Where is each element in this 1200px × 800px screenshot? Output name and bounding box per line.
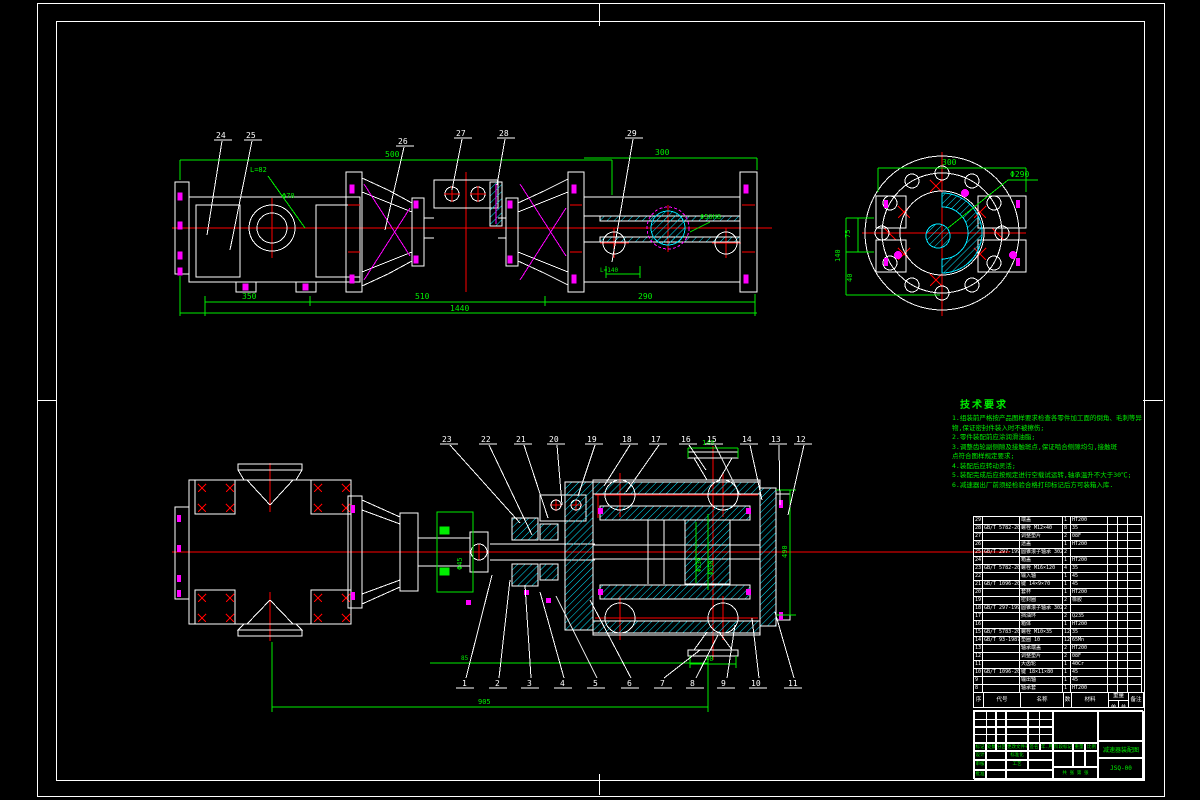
table-cell xyxy=(1127,660,1142,668)
table-cell xyxy=(1127,556,1142,564)
table-cell: 箱盖 xyxy=(1019,556,1062,564)
parts-list: 29端盖1HT20028GB/T 5782-2000螺栓 M12×4083527… xyxy=(973,516,1144,708)
balloon: 11 xyxy=(788,679,798,688)
table-cell xyxy=(1107,532,1117,540)
table-cell: 08F xyxy=(1070,652,1107,660)
table-cell: 35 xyxy=(1070,524,1107,532)
table-cell xyxy=(1070,604,1107,612)
balloon: 6 xyxy=(627,679,632,688)
col-header: 代号 xyxy=(984,693,1020,707)
table-cell: 22 xyxy=(973,572,982,580)
balloon: 9 xyxy=(721,679,726,688)
table-cell xyxy=(1107,540,1117,548)
drawing-title: 减速器装配图 xyxy=(1098,741,1144,758)
table-row: 11大齿轮140Cr xyxy=(973,660,1144,668)
table-cell: 调整垫片 xyxy=(1019,652,1062,660)
dim-label: Φ230 xyxy=(696,557,703,572)
dim-label: Φ290 xyxy=(1010,170,1029,179)
bottom-balloons-bottom: 1 2 3 4 5 6 7 8 9 10 11 xyxy=(462,679,798,688)
table-cell: GB/T 1096-2003 xyxy=(982,668,1019,676)
dim-label: 75 xyxy=(844,230,852,238)
top-view-dim-text: 500 300 350 510 290 1440 L=82 Φ70 Φ50H8 … xyxy=(242,148,721,313)
balloon: 26 xyxy=(398,137,408,146)
table-cell xyxy=(982,532,1019,540)
balloon: 8 xyxy=(690,679,695,688)
table-row: 27调整垫片208F xyxy=(973,532,1144,540)
table-cell xyxy=(1107,604,1117,612)
table-cell xyxy=(1117,580,1127,588)
table-cell: 1 xyxy=(1062,660,1070,668)
balloon: 27 xyxy=(456,129,466,138)
table-cell: 轴承套 xyxy=(1019,684,1062,692)
table-cell: 18 xyxy=(973,604,982,612)
table-cell: 24 xyxy=(973,556,982,564)
balloon: 10 xyxy=(751,679,761,688)
balloon: 1 xyxy=(462,679,467,688)
dim-label: Φ70 xyxy=(282,192,295,200)
table-cell xyxy=(982,596,1019,604)
balloon: 20 xyxy=(549,435,559,444)
dim-label: Φ45 xyxy=(456,557,464,570)
table-cell: GB/T 5783-2000 xyxy=(982,628,1019,636)
dim-label: 290 xyxy=(638,292,653,301)
table-cell: 1 xyxy=(1062,572,1070,580)
col-header: 序号 xyxy=(974,693,983,707)
table-cell: GB/T 93-1987 xyxy=(982,636,1019,644)
table-row: 25GB/T 297-1994圆锥滚子轴承 302122 xyxy=(973,548,1144,556)
table-cell xyxy=(1127,652,1142,660)
balloon: 24 xyxy=(216,131,226,140)
table-cell xyxy=(982,676,1019,684)
tb-weight: 重量 xyxy=(1073,743,1085,751)
dim-label: 140 xyxy=(834,249,842,262)
dim-label: 905 xyxy=(478,698,491,706)
table-cell xyxy=(1117,668,1127,676)
table-row: 17挡油环2Q235 xyxy=(973,612,1144,620)
dim-label: 300 xyxy=(655,148,670,157)
table-cell xyxy=(1070,548,1107,556)
table-cell xyxy=(982,572,1019,580)
table-cell: 25 xyxy=(973,548,982,556)
table-cell: 17 xyxy=(973,612,982,620)
tb-count: 处数 xyxy=(986,743,996,751)
dim-label: 510 xyxy=(415,292,430,301)
table-cell xyxy=(1117,588,1127,596)
dim-label: 350 xyxy=(242,292,257,301)
table-cell xyxy=(982,660,1019,668)
table-cell xyxy=(1117,660,1127,668)
dim-label: 85 xyxy=(461,655,469,662)
table-row: 29端盖1HT200 xyxy=(973,516,1144,524)
table-cell xyxy=(1107,572,1117,580)
table-cell: HT200 xyxy=(1070,540,1107,548)
table-cell xyxy=(1117,628,1127,636)
table-cell: 8 xyxy=(973,684,982,692)
table-cell: 1 xyxy=(1062,540,1070,548)
table-cell xyxy=(1117,564,1127,572)
bottom-dim-text: 140 40 490 85 905 Φ45 Φ230 Φ250 xyxy=(456,439,789,706)
tb-craft: 工艺 xyxy=(1006,760,1028,770)
table-row: 10GB/T 1096-2003键 18×11×80145 xyxy=(973,668,1144,676)
balloon: 25 xyxy=(246,131,256,140)
table-cell xyxy=(1117,676,1127,684)
table-row: 20套杯1HT200 xyxy=(973,588,1144,596)
balloon: 28 xyxy=(499,129,509,138)
table-cell: 45 xyxy=(1070,676,1107,684)
table-cell: 12 xyxy=(1062,636,1070,644)
table-cell xyxy=(1117,604,1127,612)
table-cell: 输入轴 xyxy=(1019,572,1062,580)
table-row: 19密封圈2橡胶 xyxy=(973,596,1144,604)
technical-notes: 技术要求 1.组装前严格按产品图样要求检查各零件加工面的倒角、毛刺等异 物,保证… xyxy=(952,396,1167,490)
table-cell xyxy=(1117,596,1127,604)
table-cell: 15 xyxy=(973,628,982,636)
table-cell: 8 xyxy=(1062,524,1070,532)
balloon: 22 xyxy=(481,435,491,444)
table-cell xyxy=(1107,652,1117,660)
col-header: 总计 xyxy=(1119,701,1128,707)
table-cell xyxy=(1107,524,1117,532)
table-cell: 2 xyxy=(1062,532,1070,540)
table-cell: 20 xyxy=(973,588,982,596)
flange-geometry xyxy=(865,156,1026,310)
table-cell xyxy=(982,540,1019,548)
tb-zone: 分区 xyxy=(996,743,1006,751)
table-cell xyxy=(1117,572,1127,580)
dim-label: L=140 xyxy=(600,267,618,274)
table-cell xyxy=(982,516,1019,524)
table-cell: 输出轴 xyxy=(1019,676,1062,684)
table-cell: GB/T 1096-2003 xyxy=(982,580,1019,588)
dim-label: 490 xyxy=(781,545,789,558)
table-cell: 键 18×11×80 xyxy=(1019,668,1062,676)
tb-sheets: 共 张 第 张 xyxy=(1053,767,1098,780)
balloon: 3 xyxy=(527,679,532,688)
note-line: 点符合图样规定要求; xyxy=(952,452,1167,462)
table-cell: 11 xyxy=(973,660,982,668)
balloon: 2 xyxy=(495,679,500,688)
table-cell: HT200 xyxy=(1070,620,1107,628)
table-cell xyxy=(1127,532,1142,540)
tb-file-no: 更改文件号 xyxy=(1006,743,1028,751)
table-cell xyxy=(1127,620,1142,628)
table-cell xyxy=(1127,516,1142,524)
balloon: 19 xyxy=(587,435,597,444)
balloon: 5 xyxy=(593,679,598,688)
balloon: 21 xyxy=(516,435,526,444)
balloon: 18 xyxy=(622,435,632,444)
table-row: 16箱体1HT200 xyxy=(973,620,1144,628)
table-cell xyxy=(1117,556,1127,564)
table-cell: 透盖 xyxy=(1019,540,1062,548)
table-cell: 35 xyxy=(1070,564,1107,572)
table-cell xyxy=(1117,524,1127,532)
table-cell xyxy=(1107,684,1117,692)
balloon: 16 xyxy=(681,435,691,444)
table-cell xyxy=(1117,644,1127,652)
table-cell: 调整垫片 xyxy=(1019,532,1062,540)
drawing-number: JSQ-00 xyxy=(1098,758,1144,780)
table-row: 18GB/T 297-1994圆锥滚子轴承 302152 xyxy=(973,604,1144,612)
table-cell xyxy=(1117,516,1127,524)
balloon: 4 xyxy=(560,679,565,688)
cad-sheet: { "colors":{"line":"#ffffff","dim":"#00e… xyxy=(0,0,1200,800)
tb-stage: 阶段标记 xyxy=(1053,743,1073,751)
table-cell: 45 xyxy=(1070,668,1107,676)
table-cell xyxy=(1107,644,1117,652)
table-row: 26透盖1HT200 xyxy=(973,540,1144,548)
table-cell: 1 xyxy=(1062,676,1070,684)
table-cell: 圆锥滚子轴承 30212 xyxy=(1019,548,1062,556)
table-cell: 35 xyxy=(1070,628,1107,636)
table-cell: 21 xyxy=(973,580,982,588)
table-cell: 14 xyxy=(973,636,982,644)
table-row: 13轴承端盖2HT200 xyxy=(973,644,1144,652)
table-cell xyxy=(1127,580,1142,588)
note-line: 1.组装前严格按产品图样要求检查各零件加工面的倒角、毛刺等异 xyxy=(952,414,1167,424)
dim-label: Φ50H8 xyxy=(700,213,721,221)
table-cell: 2 xyxy=(1062,612,1070,620)
table-cell: 套杯 xyxy=(1019,588,1062,596)
dim-label: 300 xyxy=(942,158,957,167)
table-cell xyxy=(1127,524,1142,532)
balloon: 23 xyxy=(442,435,452,444)
balloon: 13 xyxy=(771,435,781,444)
table-cell: 12 xyxy=(1062,628,1070,636)
table-cell: 2 xyxy=(1062,644,1070,652)
table-cell: 1 xyxy=(1062,516,1070,524)
table-cell: 圆锥滚子轴承 30215 xyxy=(1019,604,1062,612)
table-cell xyxy=(1127,540,1142,548)
dim-label: L=82 xyxy=(250,166,267,174)
top-view-balloons: 24 25 26 27 28 29 xyxy=(216,129,637,146)
table-cell: 端盖 xyxy=(1019,516,1062,524)
table-cell: 1 xyxy=(1062,684,1070,692)
table-cell xyxy=(1107,596,1117,604)
table-row: 14GB/T 93-1987垫圈 101265Mn xyxy=(973,636,1144,644)
table-cell: 2 xyxy=(1062,548,1070,556)
table-cell: 1 xyxy=(1062,668,1070,676)
table-cell xyxy=(1127,636,1142,644)
table-cell: HT200 xyxy=(1070,588,1107,596)
table-cell xyxy=(1107,612,1117,620)
tb-design: 设计 xyxy=(974,751,986,760)
balloon: 15 xyxy=(707,435,717,444)
table-cell: 1 xyxy=(1062,588,1070,596)
table-cell: 23 xyxy=(973,564,982,572)
tb-scale: 比例 xyxy=(1085,743,1098,751)
table-cell xyxy=(1107,636,1117,644)
table-cell: 箱体 xyxy=(1019,620,1062,628)
balloon: 12 xyxy=(796,435,806,444)
table-cell: 1 xyxy=(1062,556,1070,564)
bottom-balloons-top: 23 22 21 20 19 18 17 16 15 14 13 12 xyxy=(442,435,806,444)
table-cell: 4 xyxy=(1062,564,1070,572)
table-cell: GB/T 5782-2000 xyxy=(982,524,1019,532)
table-cell xyxy=(1127,628,1142,636)
bottom-geometry xyxy=(175,452,790,656)
parts-list-header: 序号 代号 名称 数量 材料 重量 单件 总计 备注 xyxy=(973,692,1144,708)
table-cell: 2 xyxy=(1062,604,1070,612)
table-cell: 螺栓 M12×40 xyxy=(1019,524,1062,532)
table-cell: 2 xyxy=(1062,596,1070,604)
table-cell xyxy=(1127,644,1142,652)
table-cell xyxy=(1117,532,1127,540)
tb-date: 年.月.日 xyxy=(1040,743,1053,751)
table-cell xyxy=(1127,564,1142,572)
col-header: 材料 xyxy=(1072,693,1108,707)
table-cell xyxy=(1107,628,1117,636)
note-line: 6.减速器出厂前须经检验合格打印标记后方可装箱入库. xyxy=(952,481,1167,491)
table-row: 9输出轴145 xyxy=(973,676,1144,684)
table-cell: 轴承端盖 xyxy=(1019,644,1062,652)
notes-title: 技术要求 xyxy=(960,396,1167,411)
table-cell xyxy=(1107,660,1117,668)
table-cell xyxy=(1127,676,1142,684)
table-cell xyxy=(1117,652,1127,660)
table-cell: 19 xyxy=(973,596,982,604)
table-cell: 密封圈 xyxy=(1019,596,1062,604)
table-cell: 45 xyxy=(1070,580,1107,588)
table-cell: Q235 xyxy=(1070,612,1107,620)
table-cell: 27 xyxy=(973,532,982,540)
tb-sign: 签名 xyxy=(1028,743,1040,751)
table-cell: 10 xyxy=(973,668,982,676)
table-cell xyxy=(982,612,1019,620)
table-cell: HT200 xyxy=(1070,516,1107,524)
table-cell xyxy=(1107,668,1117,676)
table-cell: 大齿轮 xyxy=(1019,660,1062,668)
table-cell: GB/T 297-1994 xyxy=(982,604,1019,612)
table-row: 28GB/T 5782-2000螺栓 M12×40835 xyxy=(973,524,1144,532)
note-line: 2.零件装配前应涂润滑油脂; xyxy=(952,433,1167,443)
dim-label: 40 xyxy=(846,274,854,282)
table-cell xyxy=(1107,620,1117,628)
table-cell xyxy=(982,644,1019,652)
table-cell: 26 xyxy=(973,540,982,548)
table-cell xyxy=(982,684,1019,692)
table-cell xyxy=(1117,612,1127,620)
table-cell xyxy=(1107,516,1117,524)
dim-label: Φ250 xyxy=(708,560,715,575)
col-header: 数量 xyxy=(1064,693,1071,707)
note-line: 4.装配后应转动灵活; xyxy=(952,462,1167,472)
table-cell: 键 14×9×70 xyxy=(1019,580,1062,588)
table-cell xyxy=(1117,540,1127,548)
tb-audit: 审核 xyxy=(974,760,986,770)
table-cell: 45 xyxy=(1070,572,1107,580)
table-cell: 08F xyxy=(1070,532,1107,540)
table-cell: GB/T 297-1994 xyxy=(982,548,1019,556)
table-cell xyxy=(982,556,1019,564)
col-header-weight: 重量 xyxy=(1109,693,1128,701)
table-cell xyxy=(1107,588,1117,596)
table-cell xyxy=(1107,556,1117,564)
table-cell: 29 xyxy=(973,516,982,524)
table-cell: 挡油环 xyxy=(1019,612,1062,620)
table-cell: 9 xyxy=(973,676,982,684)
table-cell xyxy=(1107,580,1117,588)
table-cell: HT200 xyxy=(1070,644,1107,652)
table-cell xyxy=(1107,548,1117,556)
table-cell: 垫圈 10 xyxy=(1019,636,1062,644)
title-block: 标记 处数 分区 更改文件号 签名 年.月.日 设计 标准化 审核 工艺 批准 … xyxy=(973,710,1143,779)
table-cell xyxy=(1107,676,1117,684)
table-cell xyxy=(1127,668,1142,676)
table-cell xyxy=(1117,620,1127,628)
table-cell xyxy=(1127,588,1142,596)
tb-approve: 批准 xyxy=(974,770,986,780)
table-cell xyxy=(1127,612,1142,620)
parts-list-rows: 29端盖1HT20028GB/T 5782-2000螺栓 M12×4083527… xyxy=(973,516,1144,692)
table-row: 15GB/T 5783-2000螺栓 M10×351235 xyxy=(973,628,1144,636)
balloon: 14 xyxy=(742,435,752,444)
table-cell xyxy=(1107,564,1117,572)
table-cell: HT200 xyxy=(1070,684,1107,692)
table-cell: 65Mn xyxy=(1070,636,1107,644)
table-cell: 橡胶 xyxy=(1070,596,1107,604)
table-cell xyxy=(982,652,1019,660)
table-cell: 16 xyxy=(973,620,982,628)
table-cell: 13 xyxy=(973,644,982,652)
table-cell xyxy=(1127,572,1142,580)
table-cell: 28 xyxy=(973,524,982,532)
col-header: 单件 xyxy=(1109,701,1119,707)
balloon: 17 xyxy=(651,435,661,444)
table-row: 23GB/T 5782-2000螺栓 M16×120435 xyxy=(973,564,1144,572)
table-row: 21GB/T 1096-2003键 14×9×70145 xyxy=(973,580,1144,588)
table-cell: 40Cr xyxy=(1070,660,1107,668)
table-cell: HT200 xyxy=(1070,556,1107,564)
balloon: 29 xyxy=(627,129,637,138)
table-row: 8轴承套1HT200 xyxy=(973,684,1144,692)
table-cell: 螺栓 M16×120 xyxy=(1019,564,1062,572)
note-line: 5.装配完成后应按规定进行空载试运转,轴承温升不大于30℃; xyxy=(952,471,1167,481)
table-cell xyxy=(982,588,1019,596)
table-cell xyxy=(1127,596,1142,604)
table-row: 22输入轴145 xyxy=(973,572,1144,580)
table-row: 24箱盖1HT200 xyxy=(973,556,1144,564)
note-line: 物,保证密封件装入时不被擦伤; xyxy=(952,424,1167,434)
table-cell: 12 xyxy=(973,652,982,660)
table-cell xyxy=(1117,636,1127,644)
table-cell: 1 xyxy=(1062,620,1070,628)
table-cell xyxy=(1117,684,1127,692)
dim-label: 1440 xyxy=(450,304,469,313)
table-cell: 1 xyxy=(1062,580,1070,588)
table-cell xyxy=(1127,604,1142,612)
table-cell xyxy=(1117,548,1127,556)
lug-cross-marks xyxy=(198,473,745,640)
table-cell xyxy=(982,620,1019,628)
tb-standard: 标准化 xyxy=(1006,751,1028,760)
table-cell xyxy=(1127,684,1142,692)
table-cell: GB/T 5782-2000 xyxy=(982,564,1019,572)
col-header: 名称 xyxy=(1021,693,1063,707)
col-header: 备注 xyxy=(1129,693,1143,707)
table-cell: 2 xyxy=(1062,652,1070,660)
balloon: 7 xyxy=(660,679,665,688)
dim-label: 500 xyxy=(385,150,400,159)
table-cell: 螺栓 M10×35 xyxy=(1019,628,1062,636)
table-cell xyxy=(1127,548,1142,556)
note-line: 3.调整齿轮副侧隙及接触斑点,保证啮合侧隙均匀,接触斑 xyxy=(952,443,1167,453)
tb-mark: 标记 xyxy=(974,743,986,751)
table-row: 12调整垫片208F xyxy=(973,652,1144,660)
